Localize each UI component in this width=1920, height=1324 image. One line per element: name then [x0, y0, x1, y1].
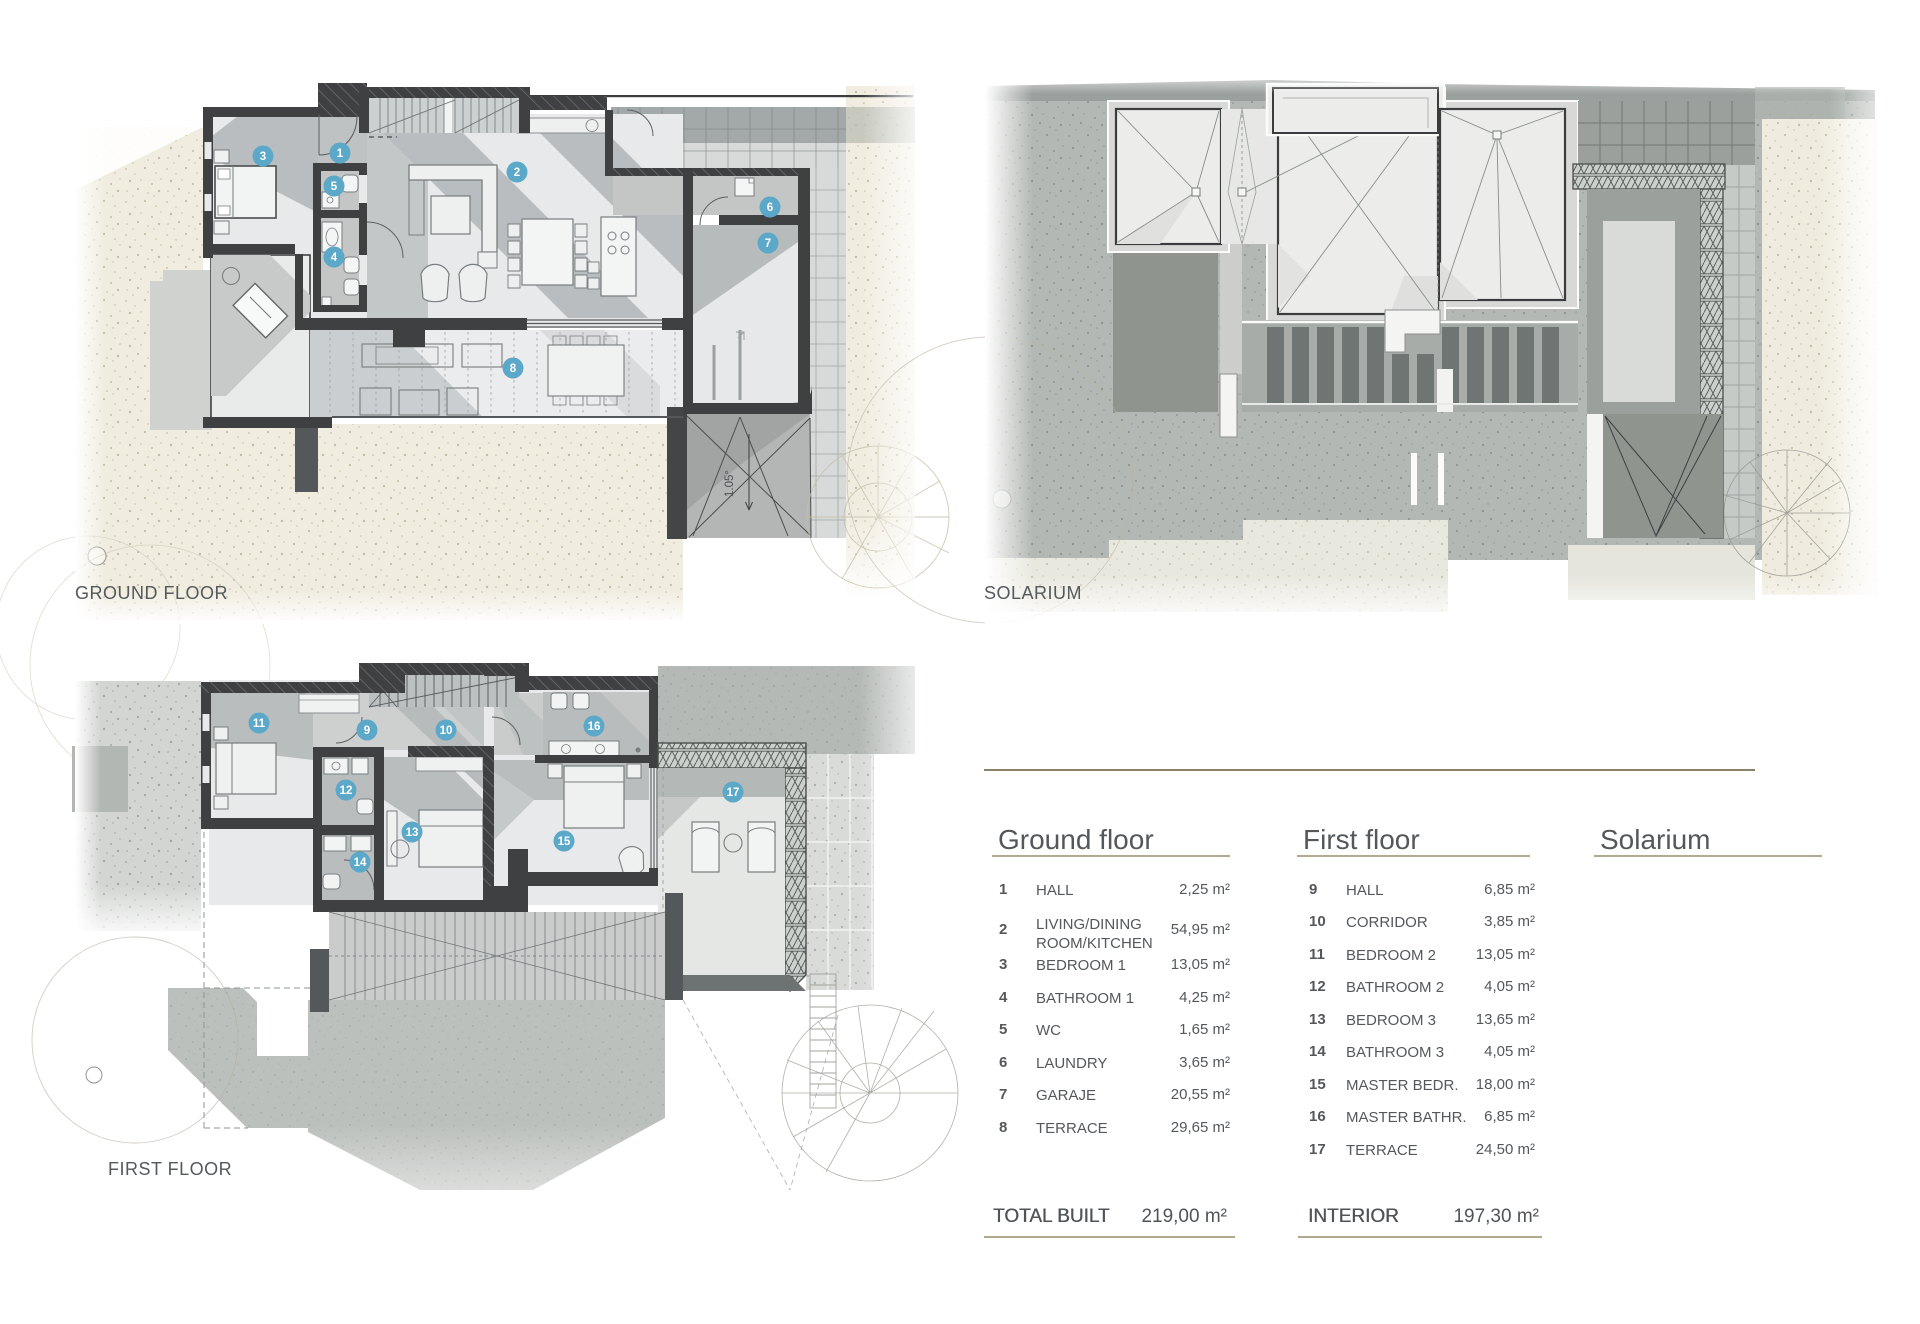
svg-text:4: 4	[331, 252, 338, 264]
svg-text:1.05°: 1.05°	[724, 470, 736, 497]
svg-text:13: 13	[406, 827, 419, 839]
svg-text:11: 11	[253, 718, 266, 730]
svg-text:10: 10	[440, 725, 453, 737]
svg-text:14: 14	[354, 857, 367, 869]
svg-text:17: 17	[727, 787, 740, 799]
svg-text:8: 8	[510, 363, 517, 375]
svg-text:15: 15	[558, 836, 571, 848]
svg-text:6: 6	[767, 202, 773, 214]
svg-text:9: 9	[364, 725, 370, 737]
svg-text:7: 7	[765, 238, 771, 250]
svg-text:12: 12	[340, 785, 353, 797]
svg-text:2: 2	[514, 167, 520, 179]
svg-text:3: 3	[260, 151, 266, 163]
svg-text:5: 5	[331, 181, 338, 193]
svg-text:16: 16	[588, 721, 601, 733]
svg-text:1: 1	[337, 148, 344, 160]
